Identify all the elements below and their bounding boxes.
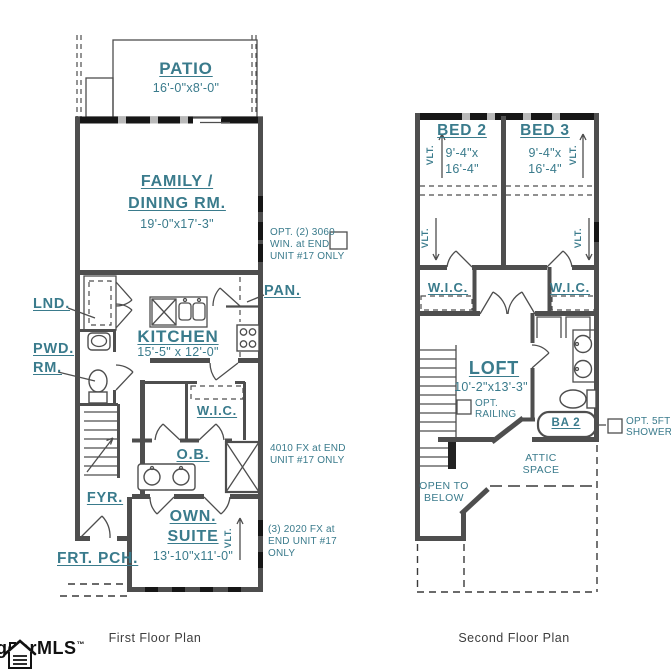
room-label-wic-bed3: W.I.C. <box>550 280 590 295</box>
note-opt-shower-line2: SHOWER <box>626 427 671 439</box>
room-dims-bed3-line2: 16'-4" <box>528 162 562 176</box>
second-floor-drawing <box>415 113 622 592</box>
floorplan-canvas <box>0 0 671 672</box>
room-dims-bed2-line2: 16'-4" <box>445 162 479 176</box>
room-label-family-line2: DINING RM. <box>128 195 226 213</box>
opt-railing-marker-box <box>457 400 471 414</box>
floor-plan-page: PATIO 16'-0"x8'-0" FAMILY / DINING RM. 1… <box>0 0 671 672</box>
room-label-bath2: BA 2 <box>552 417 581 429</box>
label-attic-space-line1: ATTIC <box>525 452 557 464</box>
note-opt-windows-line1: OPT. (2) 3060 <box>270 227 335 239</box>
note-opt-windows-line2: WIN. at END <box>270 239 329 251</box>
room-dims-kitchen: 15'-5" x 12'-0" <box>137 345 218 359</box>
vlt-label-bed2-upper: VLT. <box>425 145 435 165</box>
vlt-label-bed3-upper: VLT. <box>568 145 578 165</box>
room-label-own-suite-line2: SUITE <box>167 528 218 546</box>
label-open-to-below-line2: BELOW <box>424 492 464 504</box>
room-label-family-line1: FAMILY / <box>141 173 213 191</box>
room-label-wic-first: W.I.C. <box>197 403 237 418</box>
room-dims-patio: 16'-0"x8'-0" <box>153 81 220 95</box>
caption-second-floor: Second Floor Plan <box>458 631 569 645</box>
room-label-bed2: BED 2 <box>437 122 487 140</box>
room-label-kitchen: KITCHEN <box>137 327 218 347</box>
room-dims-own-suite: 13'-10"x11'-0" <box>153 549 233 563</box>
room-label-powder-line1: PWD. <box>33 341 74 357</box>
vlt-label-own-suite: VLT. <box>223 528 233 548</box>
label-open-to-below-line1: OPEN TO <box>419 480 469 492</box>
room-dims-loft: 10'-2"x13'-3" <box>454 380 528 394</box>
room-label-foyer: FYR. <box>87 490 123 506</box>
room-label-front-porch: FRT. PCH. <box>57 550 138 568</box>
vlt-label-bed3-lower: VLT. <box>573 228 583 248</box>
vlt-label-bed2-lower: VLT. <box>420 228 430 248</box>
label-attic-space-line2: SPACE <box>523 464 560 476</box>
mls-logo: ggarMLS™ <box>2 639 85 659</box>
note-2020fx-line3: ONLY <box>268 548 295 560</box>
room-label-loft: LOFT <box>469 358 519 379</box>
note-2020fx-line2: END UNIT #17 <box>268 536 337 548</box>
room-label-owners-bath: O.B. <box>176 447 209 463</box>
note-4010fx-line2: UNIT #17 ONLY <box>270 455 344 467</box>
room-dims-bed3-line1: 9'-4"x <box>529 146 562 160</box>
ac-pad <box>86 78 113 117</box>
caption-first-floor: First Floor Plan <box>109 631 202 645</box>
room-label-powder-line2: RM. <box>33 360 62 376</box>
room-label-laundry: LND. <box>33 296 70 312</box>
room-label-own-suite-line1: OWN. <box>170 508 217 526</box>
note-opt-windows-line3: UNIT #17 ONLY <box>270 251 344 263</box>
opt-shower-marker-box <box>608 419 622 433</box>
room-label-wic-bed2: W.I.C. <box>428 280 468 295</box>
note-opt-railing-line2: RAILING <box>475 409 516 421</box>
room-label-patio: PATIO <box>159 59 212 79</box>
note-4010fx-line1: 4010 FX at END <box>270 443 346 455</box>
room-label-pantry: PAN. <box>264 283 301 299</box>
mls-logo-tm: ™ <box>77 640 86 649</box>
note-2020fx-line1: (3) 2020 FX at <box>268 524 335 536</box>
room-label-bed3: BED 3 <box>520 122 570 140</box>
room-dims-family: 19'-0"x17'-3" <box>140 217 214 231</box>
room-dims-bed2-line1: 9'-4"x <box>446 146 479 160</box>
house-icon <box>2 639 38 670</box>
